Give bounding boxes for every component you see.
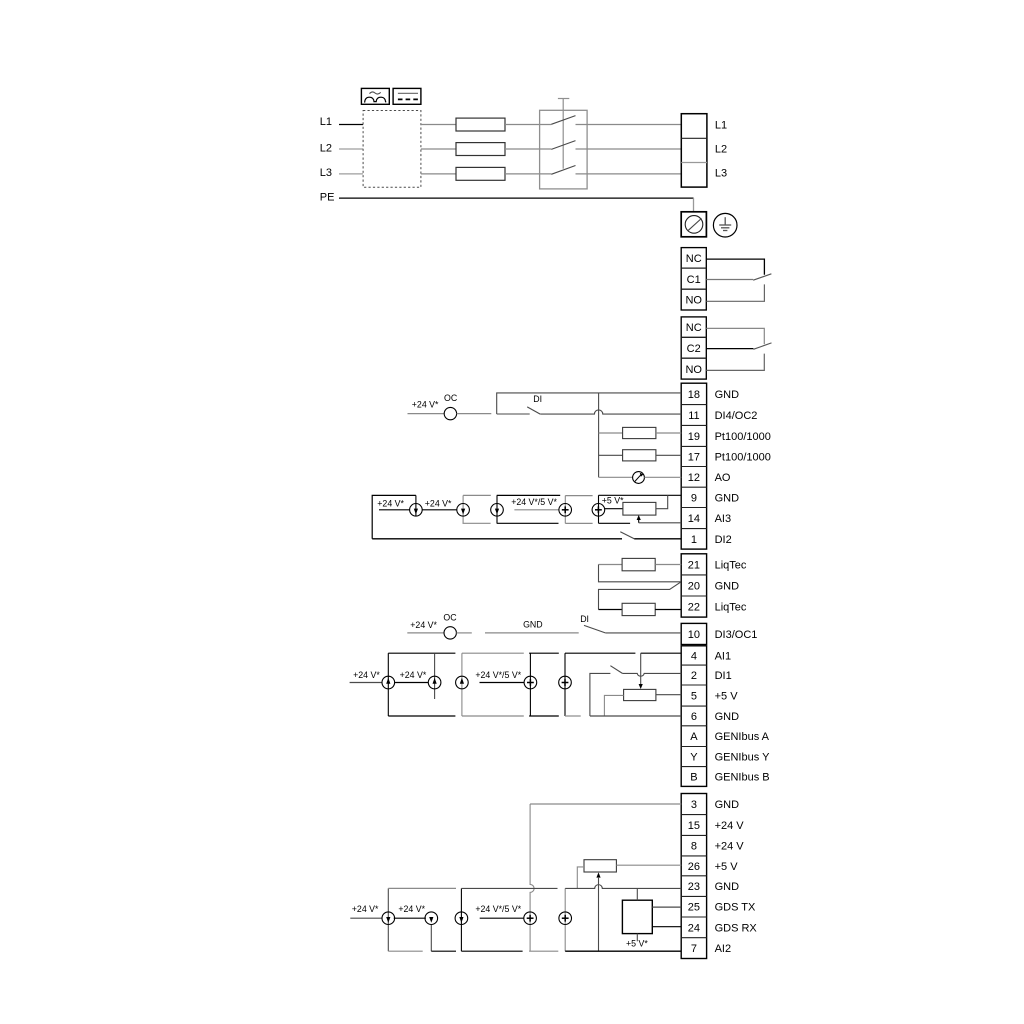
svg-text:Pt100/1000: Pt100/1000 bbox=[715, 431, 771, 443]
svg-text:24: 24 bbox=[688, 922, 700, 934]
svg-text:DI1: DI1 bbox=[715, 670, 732, 682]
svg-text:1: 1 bbox=[691, 534, 697, 546]
svg-text:25: 25 bbox=[688, 902, 700, 914]
svg-text:C1: C1 bbox=[687, 274, 701, 286]
svg-text:LiqTec: LiqTec bbox=[715, 559, 747, 571]
svg-text:L3: L3 bbox=[320, 167, 332, 179]
svg-text:A: A bbox=[690, 731, 698, 743]
svg-text:6: 6 bbox=[691, 711, 697, 723]
svg-text:+24 V*: +24 V* bbox=[377, 499, 404, 509]
svg-text:8: 8 bbox=[691, 841, 697, 853]
svg-text:DI: DI bbox=[580, 614, 589, 624]
svg-text:3: 3 bbox=[691, 799, 697, 811]
svg-text:PE: PE bbox=[320, 191, 335, 203]
svg-text:Pt100/1000: Pt100/1000 bbox=[715, 452, 771, 464]
svg-text:5: 5 bbox=[691, 691, 697, 703]
svg-text:DI: DI bbox=[533, 394, 542, 404]
svg-text:+24 V*: +24 V* bbox=[410, 620, 437, 630]
svg-text:AI1: AI1 bbox=[715, 651, 732, 663]
svg-text:GENIbus A: GENIbus A bbox=[715, 731, 770, 743]
svg-text:12: 12 bbox=[688, 472, 700, 484]
svg-text:4: 4 bbox=[691, 651, 697, 663]
svg-text:21: 21 bbox=[688, 559, 700, 571]
svg-text:GND: GND bbox=[715, 389, 740, 401]
svg-text:11: 11 bbox=[688, 410, 699, 422]
svg-text:18: 18 bbox=[688, 389, 700, 401]
svg-text:7: 7 bbox=[691, 943, 697, 955]
svg-text:AI3: AI3 bbox=[715, 513, 732, 525]
svg-text:+24 V*: +24 V* bbox=[400, 670, 427, 680]
svg-text:23: 23 bbox=[688, 881, 700, 893]
svg-text:15: 15 bbox=[688, 820, 700, 832]
svg-text:26: 26 bbox=[688, 861, 700, 873]
svg-text:DI2: DI2 bbox=[715, 534, 732, 546]
svg-text:OC: OC bbox=[443, 612, 457, 622]
svg-text:14: 14 bbox=[688, 513, 700, 525]
svg-text:+5 V: +5 V bbox=[715, 861, 739, 873]
svg-text:+24 V: +24 V bbox=[715, 841, 745, 853]
svg-text:+5 V*: +5 V* bbox=[626, 939, 648, 949]
svg-text:+24 V*: +24 V* bbox=[412, 400, 439, 410]
svg-text:GENIbus Y: GENIbus Y bbox=[715, 752, 770, 764]
svg-text:GDS RX: GDS RX bbox=[715, 922, 758, 934]
svg-text:GENIbus B: GENIbus B bbox=[715, 772, 770, 784]
svg-text:10: 10 bbox=[688, 629, 700, 641]
svg-text:NO: NO bbox=[685, 295, 702, 307]
svg-text:GND: GND bbox=[715, 581, 740, 593]
svg-text:+24 V*/5 V*: +24 V*/5 V* bbox=[475, 670, 521, 680]
svg-text:+24 V*: +24 V* bbox=[352, 904, 379, 914]
svg-text:DI3/OC1: DI3/OC1 bbox=[715, 629, 758, 641]
svg-text:GND: GND bbox=[715, 881, 740, 893]
svg-text:OC: OC bbox=[444, 393, 458, 403]
svg-text:LiqTec: LiqTec bbox=[715, 602, 747, 614]
svg-text:GND: GND bbox=[715, 492, 740, 504]
svg-text:+24 V*: +24 V* bbox=[398, 904, 425, 914]
svg-text:GDS TX: GDS TX bbox=[715, 902, 756, 914]
svg-text:L3: L3 bbox=[715, 168, 727, 180]
svg-text:+5 V*: +5 V* bbox=[602, 496, 624, 506]
svg-text:GND: GND bbox=[523, 619, 543, 629]
svg-text:19: 19 bbox=[688, 431, 700, 443]
svg-text:+24 V*/5 V*: +24 V*/5 V* bbox=[511, 497, 557, 507]
svg-text:L1: L1 bbox=[715, 119, 727, 131]
svg-text:22: 22 bbox=[688, 602, 700, 614]
svg-text:DI4/OC2: DI4/OC2 bbox=[715, 410, 758, 422]
svg-text:2: 2 bbox=[691, 670, 697, 682]
svg-text:17: 17 bbox=[688, 452, 700, 464]
svg-text:+24 V: +24 V bbox=[715, 820, 745, 832]
svg-text:GND: GND bbox=[715, 799, 740, 811]
svg-text:C2: C2 bbox=[687, 343, 701, 355]
svg-text:L1: L1 bbox=[320, 116, 332, 128]
svg-text:+24 V*/5 V*: +24 V*/5 V* bbox=[475, 904, 521, 914]
svg-text:L2: L2 bbox=[320, 143, 332, 155]
svg-text:+5 V: +5 V bbox=[715, 691, 739, 703]
svg-text:NO: NO bbox=[685, 364, 702, 376]
svg-text:Y: Y bbox=[690, 752, 698, 764]
svg-text:+24 V*: +24 V* bbox=[353, 670, 380, 680]
svg-text:9: 9 bbox=[691, 492, 697, 504]
svg-text:L2: L2 bbox=[715, 143, 727, 155]
svg-text:+24 V*: +24 V* bbox=[425, 499, 452, 509]
svg-text:NC: NC bbox=[686, 253, 702, 265]
svg-text:20: 20 bbox=[688, 581, 700, 593]
svg-text:NC: NC bbox=[686, 322, 702, 334]
svg-text:AI2: AI2 bbox=[715, 943, 732, 955]
svg-text:GND: GND bbox=[715, 711, 740, 723]
svg-text:AO: AO bbox=[715, 472, 731, 484]
svg-text:B: B bbox=[690, 772, 697, 784]
